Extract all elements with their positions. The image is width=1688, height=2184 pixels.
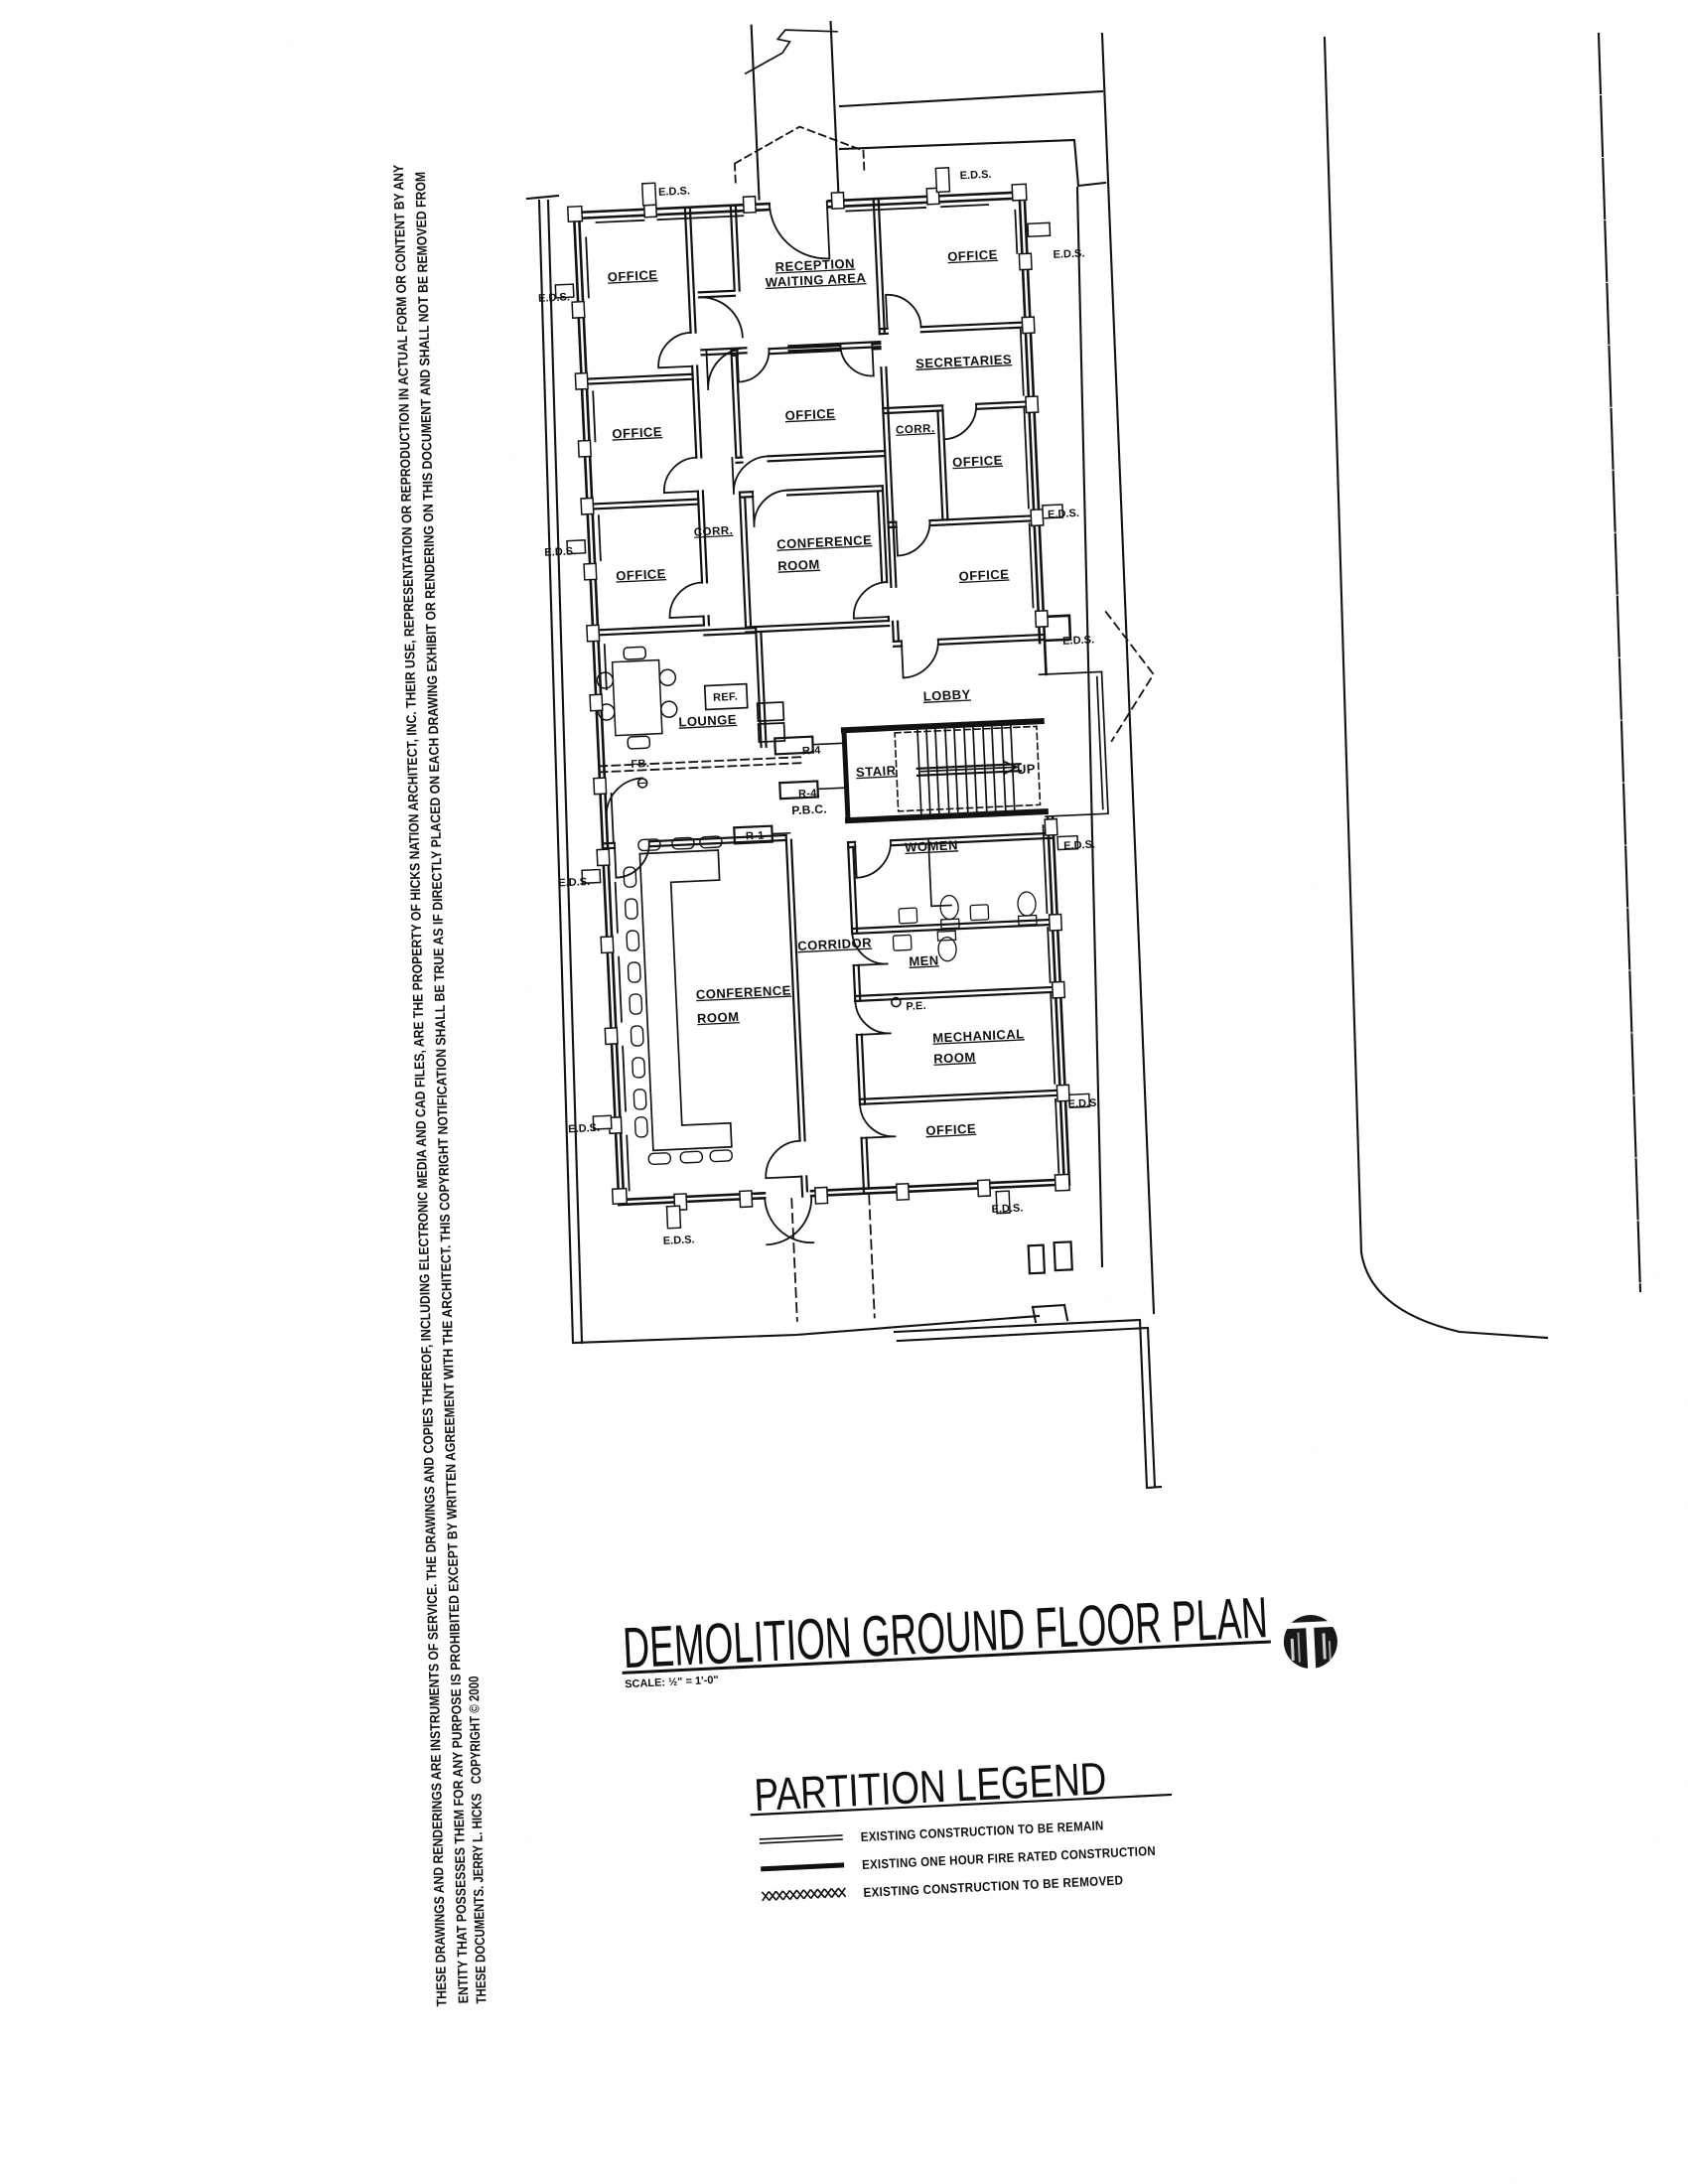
- svg-text:MEN: MEN: [909, 952, 939, 968]
- svg-text:OFFICE: OFFICE: [952, 453, 1003, 470]
- svg-text:REF.: REF.: [713, 691, 739, 704]
- svg-text:E.D.S.: E.D.S.: [1067, 1097, 1099, 1111]
- svg-text:ROOM: ROOM: [933, 1050, 976, 1067]
- svg-text:E.D.S.: E.D.S.: [1048, 508, 1079, 521]
- svg-text:ROOM: ROOM: [697, 1009, 740, 1026]
- svg-text:WOMEN: WOMEN: [905, 837, 958, 855]
- svg-text:STAIR: STAIR: [856, 763, 897, 780]
- svg-text:UP: UP: [1017, 761, 1036, 777]
- svg-text:OFFICE: OFFICE: [612, 424, 662, 441]
- svg-text:E.D.S.: E.D.S.: [538, 291, 570, 305]
- svg-text:E.D.S.: E.D.S.: [1062, 634, 1094, 648]
- svg-text:CORR.: CORR.: [694, 525, 734, 539]
- svg-text:R-4: R-4: [798, 788, 818, 801]
- svg-text:OFFICE: OFFICE: [784, 406, 835, 423]
- svg-text:LOUNGE: LOUNGE: [678, 712, 737, 730]
- svg-text:FB.: FB.: [631, 758, 649, 771]
- svg-text:E.D.S.: E.D.S.: [663, 1234, 695, 1247]
- svg-text:R-4: R-4: [802, 745, 822, 758]
- svg-text:OFFICE: OFFICE: [958, 566, 1009, 583]
- svg-text:E.D.S.: E.D.S.: [568, 1122, 600, 1136]
- svg-text:OFFICE: OFFICE: [616, 566, 666, 583]
- svg-text:E.D.S.: E.D.S.: [558, 876, 590, 890]
- svg-text:R-1: R-1: [746, 830, 765, 843]
- svg-text:OFFICE: OFFICE: [607, 267, 657, 284]
- svg-text:LOBBY: LOBBY: [922, 686, 971, 703]
- svg-text:OFFICE: OFFICE: [925, 1121, 976, 1138]
- svg-text:E.D.S.: E.D.S.: [658, 185, 690, 199]
- svg-text:P.B.C.: P.B.C.: [791, 801, 827, 817]
- svg-text:E.D.S.: E.D.S.: [959, 169, 991, 183]
- svg-text:E.D.S.: E.D.S.: [544, 545, 576, 559]
- svg-text:E.D.S.: E.D.S.: [991, 1202, 1023, 1216]
- svg-text:CORR.: CORR.: [896, 423, 935, 437]
- svg-text:OFFICE: OFFICE: [947, 247, 998, 264]
- svg-text:ROOM: ROOM: [777, 557, 820, 574]
- svg-text:E.D.S.: E.D.S.: [1053, 247, 1084, 261]
- svg-text:P.E.: P.E.: [906, 1000, 926, 1013]
- svg-text:E.D.S.: E.D.S.: [1063, 839, 1095, 853]
